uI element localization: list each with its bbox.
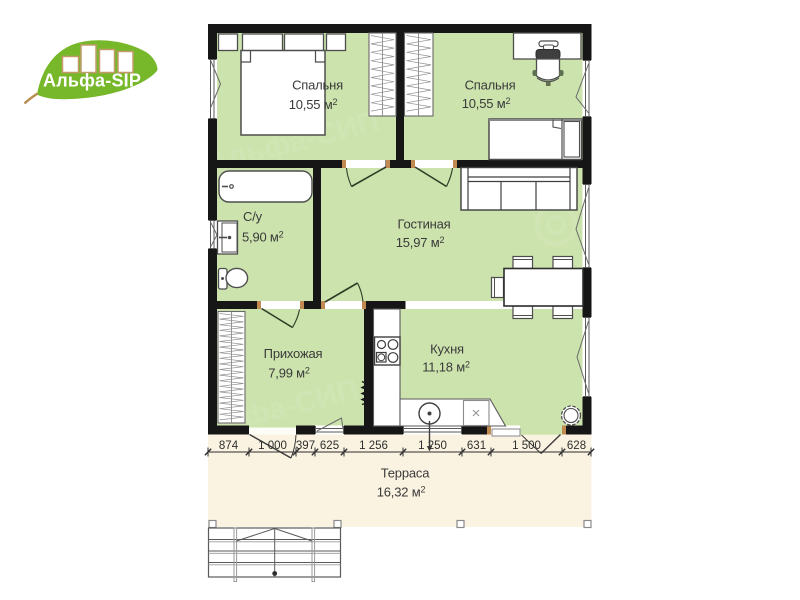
- svg-text:Прихожая: Прихожая: [264, 346, 323, 361]
- svg-text:7,99 м2: 7,99 м2: [268, 366, 310, 381]
- svg-text:397: 397: [296, 440, 315, 452]
- svg-text:5,90 м2: 5,90 м2: [242, 230, 284, 245]
- svg-text:628: 628: [567, 440, 586, 452]
- svg-text:15,97 м2: 15,97 м2: [396, 235, 445, 250]
- svg-text:Спальня: Спальня: [465, 78, 516, 93]
- svg-text:10,55 м2: 10,55 м2: [462, 96, 511, 111]
- svg-text:631: 631: [467, 440, 486, 452]
- svg-text:1 500: 1 500: [512, 440, 541, 452]
- svg-text:1 250: 1 250: [418, 440, 447, 452]
- svg-text:Гостиная: Гостиная: [398, 217, 451, 232]
- svg-text:11,18 м2: 11,18 м2: [422, 360, 470, 375]
- svg-text:Альфа-SIP: Альфа-SIP: [43, 71, 141, 91]
- svg-text:874: 874: [219, 440, 239, 452]
- svg-text:10,55 м2: 10,55 м2: [289, 97, 338, 112]
- svg-text:Спальня: Спальня: [292, 78, 343, 93]
- svg-text:16,32 м2: 16,32 м2: [377, 485, 426, 500]
- svg-text:С/у: С/у: [243, 209, 263, 224]
- svg-text:Кухня: Кухня: [430, 342, 464, 357]
- svg-text:Терраса: Терраса: [381, 466, 430, 481]
- svg-text:625: 625: [320, 440, 339, 452]
- svg-text:1 000: 1 000: [258, 440, 287, 452]
- svg-text:1 256: 1 256: [359, 440, 388, 452]
